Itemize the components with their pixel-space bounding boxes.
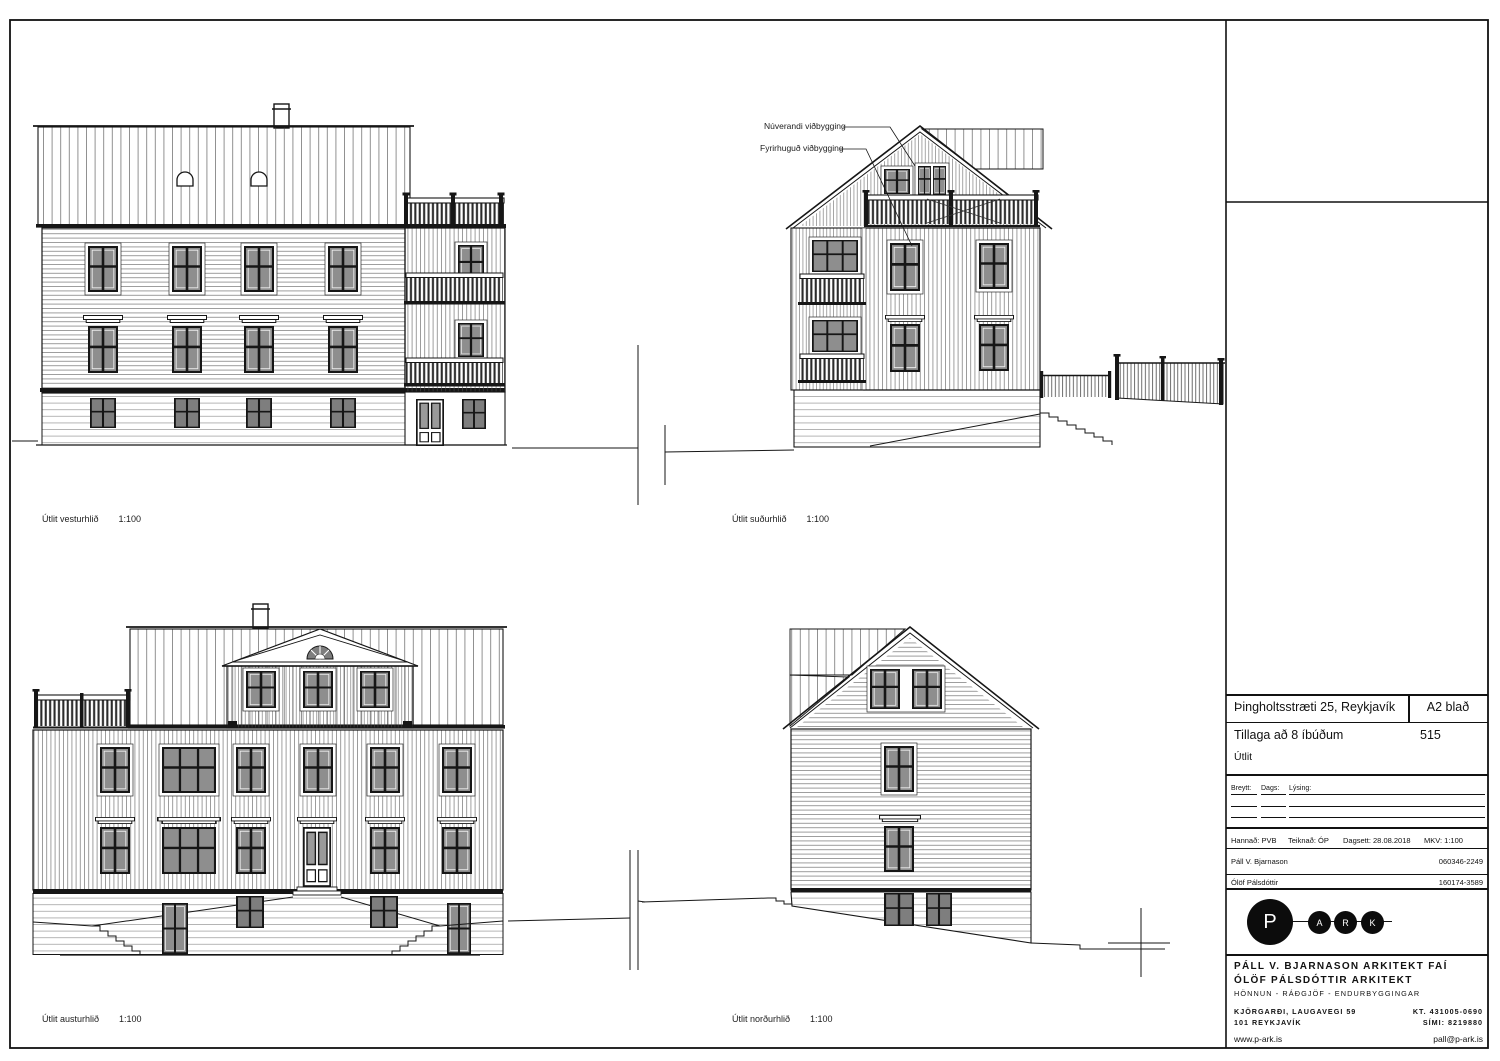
meta-scale: MKV: 1:100 xyxy=(1424,836,1463,845)
annotation-existing-extension: Núverandi viðbygging xyxy=(764,121,846,131)
firm-tagline: HÖNNUN - RÁÐGJÖF - ENDURBYGGINGAR xyxy=(1234,989,1420,998)
fence xyxy=(1040,354,1225,405)
firm-kt: KT. 431005-0690 xyxy=(1330,1007,1483,1016)
annotation-proposed-extension: Fyrirhuguð viðbygging xyxy=(760,143,844,153)
firm-address-2: 101 REYKJAVÍK xyxy=(1234,1018,1302,1027)
east-roof-railing xyxy=(33,689,132,728)
logo-a-icon: A xyxy=(1308,911,1331,934)
datum-marks-top xyxy=(512,345,665,505)
project-title: Þingholtsstræti 25, Reykjavík xyxy=(1234,700,1395,714)
sheet-size: A2 blað xyxy=(1408,700,1488,714)
rev-header-desc: Lýsing: xyxy=(1289,785,1311,792)
label-west-scale: 1:100 xyxy=(119,514,142,524)
rev-header-date: Dags: xyxy=(1261,785,1279,792)
person-1-id: 060346-2249 xyxy=(1330,857,1483,866)
person-1-name: Páll V. Bjarnason xyxy=(1231,857,1288,866)
label-east-scale: 1:100 xyxy=(119,1014,142,1024)
label-south-scale: 1:100 xyxy=(807,514,830,524)
west-elevation-drawing xyxy=(12,104,507,445)
firm-phone: SÍMI: 8219880 xyxy=(1330,1018,1483,1027)
project-subtitle: Tillaga að 8 íbúðum xyxy=(1234,728,1343,742)
logo-p-icon: P xyxy=(1247,899,1293,945)
label-west-elevation: Útlit vesturhlið 1:100 xyxy=(42,514,141,524)
meta-designed: Hannað: PVB xyxy=(1231,836,1276,845)
label-east-name: Útlit austurhlið xyxy=(42,1014,99,1024)
sheet-number: 515 xyxy=(1420,728,1441,742)
west-addition xyxy=(403,193,507,446)
meta-drawn: Teiknað: ÓP xyxy=(1288,836,1329,845)
drawing-sheet: Útlit vesturhlið 1:100 Útlit suðurhlið 1… xyxy=(0,0,1500,1061)
firm-website: www.p-ark.is xyxy=(1234,1034,1282,1044)
meta-dated: Dagsett: 28.08.2018 xyxy=(1343,836,1411,845)
label-north-scale: 1:100 xyxy=(810,1014,833,1024)
person-2-id: 160174-3589 xyxy=(1330,878,1483,887)
firm-email: pall@p-ark.is xyxy=(1330,1034,1483,1044)
label-north-name: Útlit norðurhlið xyxy=(732,1014,790,1024)
label-south-name: Útlit suðurhlið xyxy=(732,514,787,524)
north-elevation-drawing xyxy=(508,627,1170,977)
rev-header-changed: Breytt: xyxy=(1231,785,1251,792)
label-north-elevation: Útlit norðurhlið 1:100 xyxy=(732,1014,833,1024)
label-east-elevation: Útlit austurhlið 1:100 xyxy=(42,1014,142,1024)
south-elevation-drawing xyxy=(512,126,1225,505)
label-south-elevation: Útlit suðurhlið 1:100 xyxy=(732,514,829,524)
firm-name-1: PÁLL V. BJARNASON ARKITEKT FAÍ xyxy=(1234,961,1448,972)
logo-k-icon: K xyxy=(1361,911,1384,934)
firm-name-2: ÓLÖF PÁLSDÓTTIR ARKITEKT xyxy=(1234,975,1413,986)
person-2-name: Ólöf Pálsdóttir xyxy=(1231,878,1278,887)
label-west-name: Útlit vesturhlið xyxy=(42,514,99,524)
sheet-content: Útlit xyxy=(1234,751,1252,763)
east-elevation-drawing xyxy=(33,604,508,955)
datum-marks-bottom xyxy=(508,850,645,970)
logo-r-icon: R xyxy=(1334,911,1357,934)
